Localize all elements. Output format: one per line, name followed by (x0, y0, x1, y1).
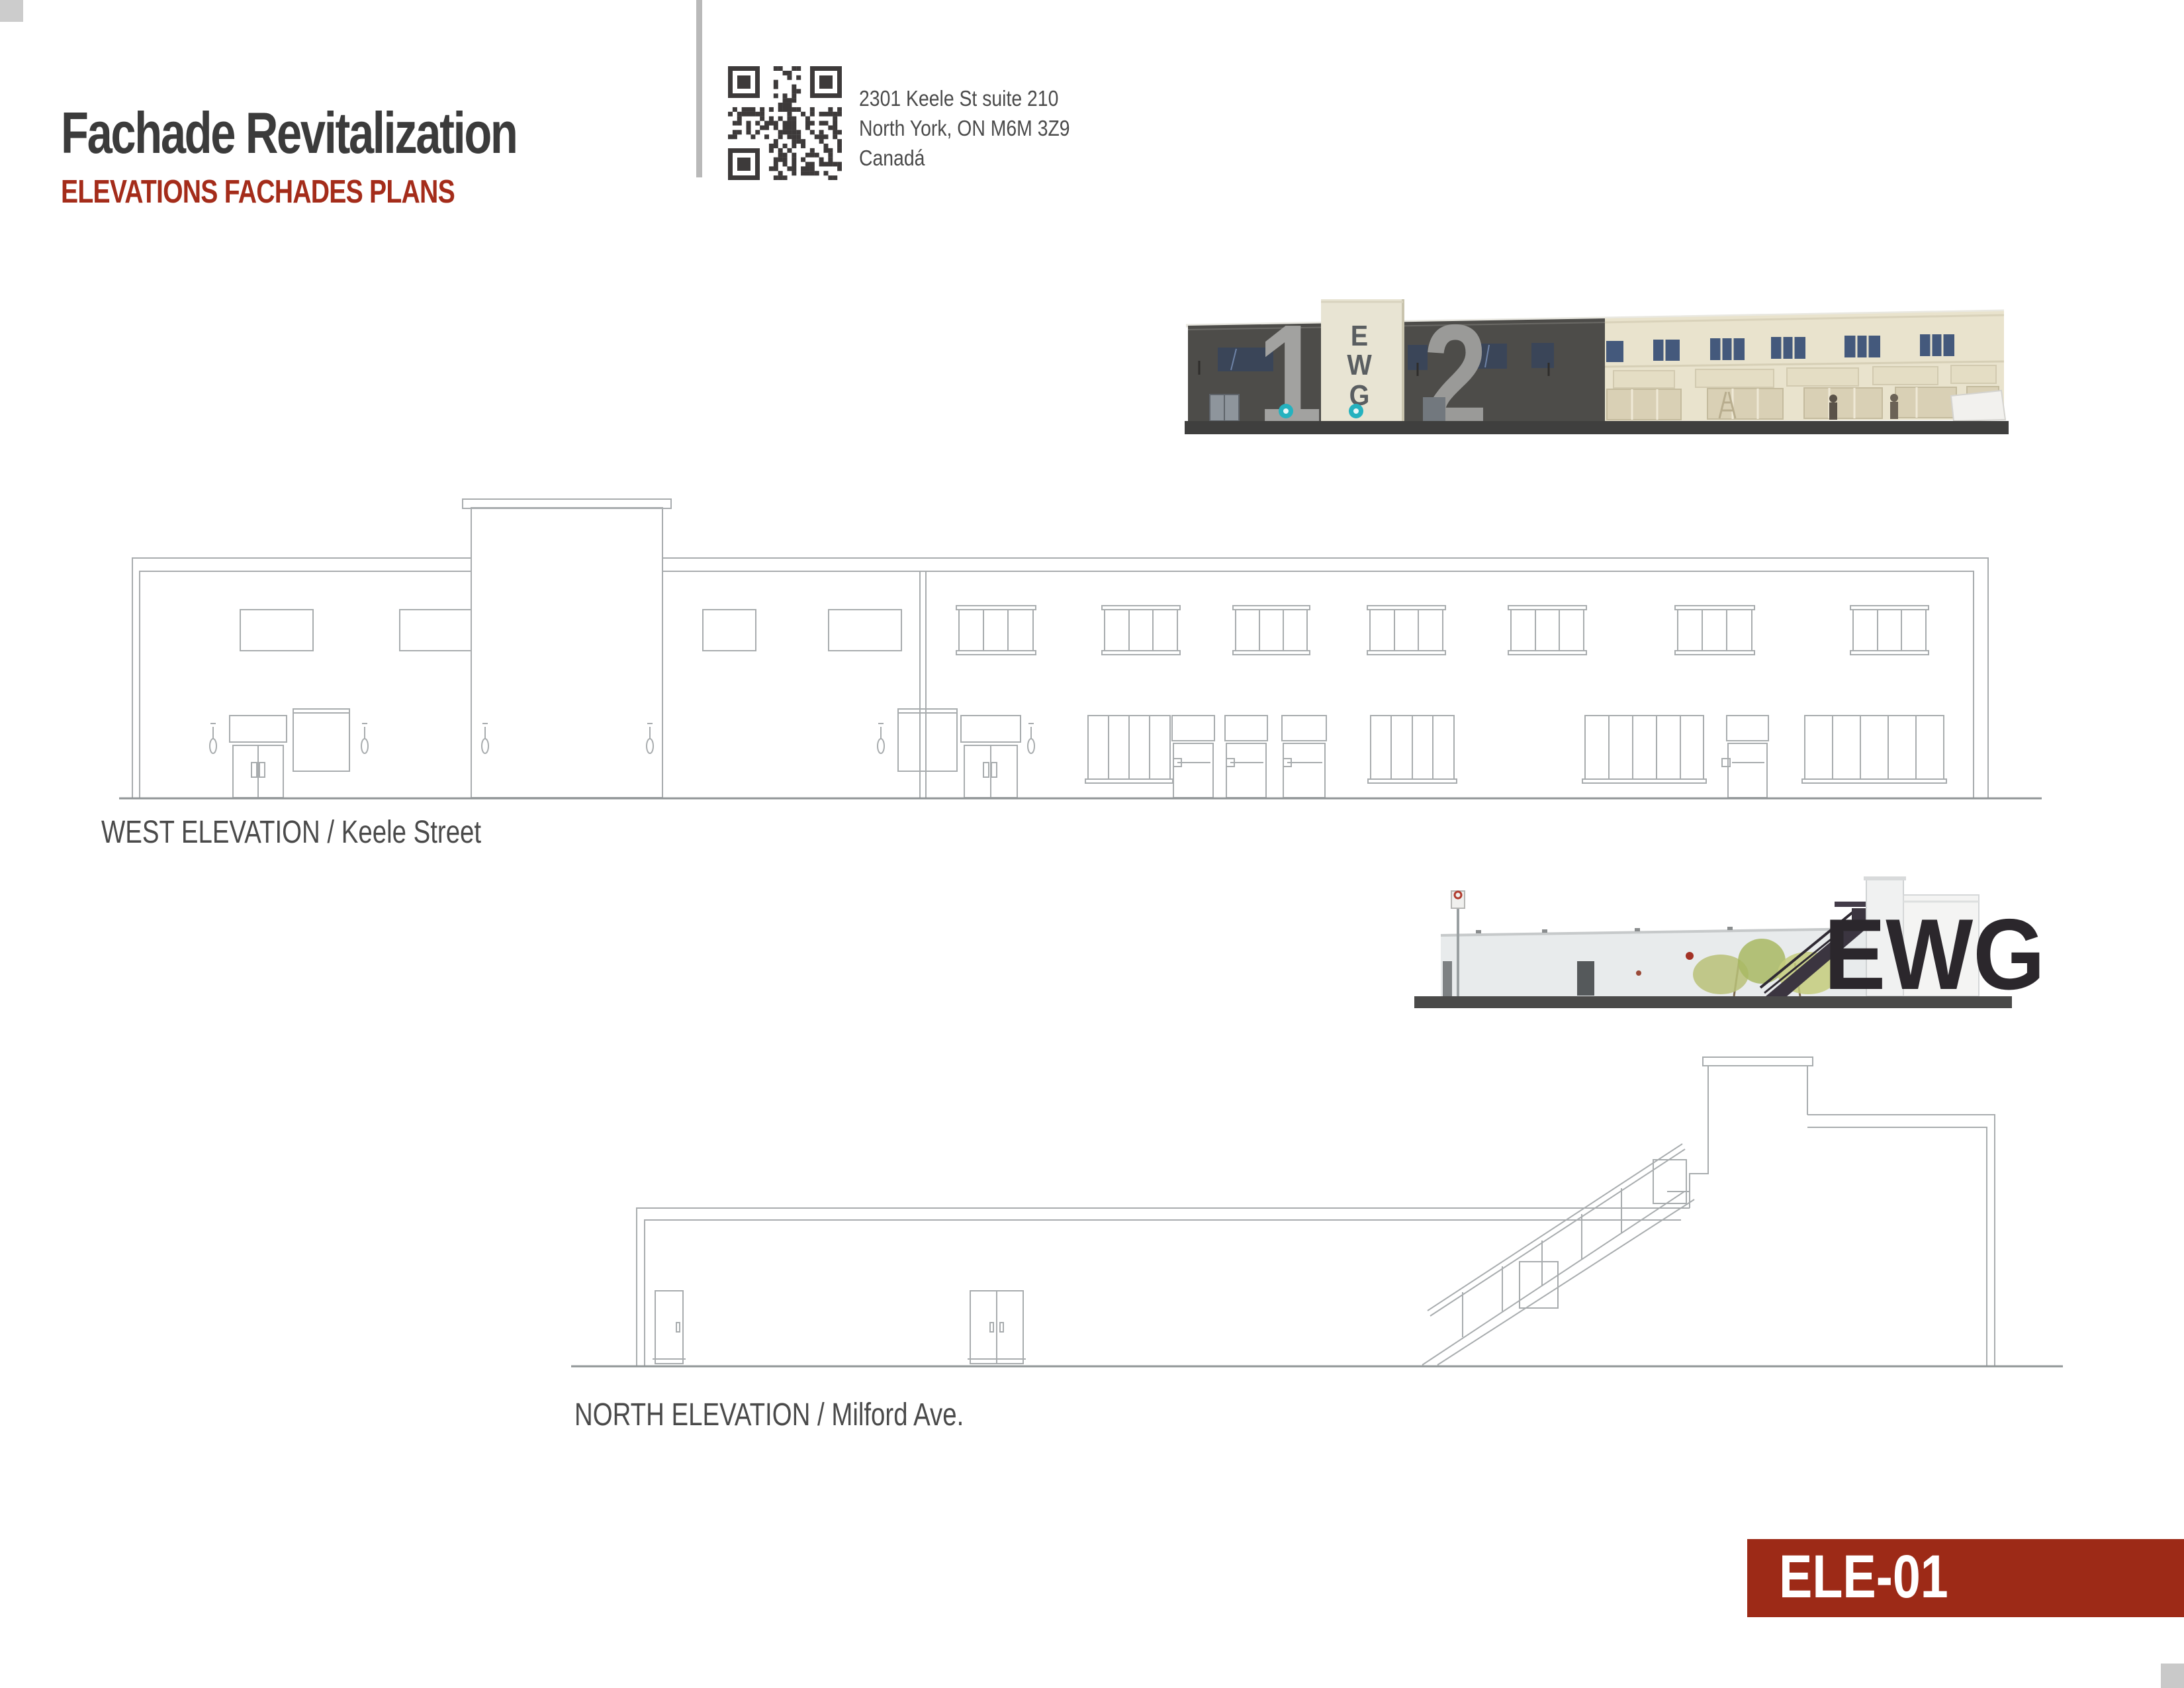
west-upper-windows-plain (240, 610, 901, 651)
west-elevation-drawing (119, 499, 2042, 798)
north-tower-cap (1703, 1057, 1813, 1066)
west-storefronts (1085, 716, 1946, 798)
west-parapet-outer (132, 558, 1988, 798)
north-right-parapet-inner (1807, 1127, 1987, 1366)
west-entry-a (230, 709, 349, 798)
sheet-number-badge: ELE-01 (1747, 1539, 2184, 1617)
photo2-red-dot (1686, 952, 1694, 960)
photo2-ewg-sign-text: EWG (1824, 898, 2045, 1011)
north-right-parapet-outer (1807, 1115, 1995, 1366)
north-elevation-label: NORTH ELEVATION / Milford Ave. (574, 1397, 964, 1433)
north-single-door (653, 1291, 686, 1364)
north-parapet-outer (637, 1208, 1690, 1366)
photo1-letter-w: W (1347, 348, 1372, 381)
photo1-trailer (1951, 391, 2005, 421)
west-tower-cap (463, 499, 671, 508)
north-double-door (968, 1291, 1026, 1364)
photo2-ground-strip (1414, 996, 2012, 1008)
west-entry-b (898, 709, 1021, 798)
sheet-number: ELE-01 (1779, 1539, 1948, 1615)
west-upper-windows-mullioned (956, 606, 1929, 655)
north-tower-left-step (1690, 1066, 1708, 1208)
west-elevation-label: WEST ELEVATION / Keele Street (101, 814, 481, 851)
photo1-ground-strip (1185, 421, 2009, 434)
sheet-page: Fachade Revitalization ELEVATIONS FACHAD… (0, 0, 2184, 1688)
north-roof-stair (1422, 1144, 1694, 1365)
west-tower (471, 508, 662, 798)
west-sconce-icons (210, 724, 1034, 753)
photo-strip-ewg-sign: EWG (1414, 876, 2045, 1010)
north-parapet-inner (645, 1220, 1681, 1366)
photo2-door (1577, 961, 1594, 996)
photo1-letter-e: E (1351, 319, 1368, 352)
corner-marker-bottom-right (2161, 1664, 2184, 1688)
north-elevation-drawing (571, 1057, 2063, 1366)
photo1-door-mid (1423, 397, 1445, 421)
photo-strip-keele-facade: 1 2 E W G (1185, 295, 2009, 454)
